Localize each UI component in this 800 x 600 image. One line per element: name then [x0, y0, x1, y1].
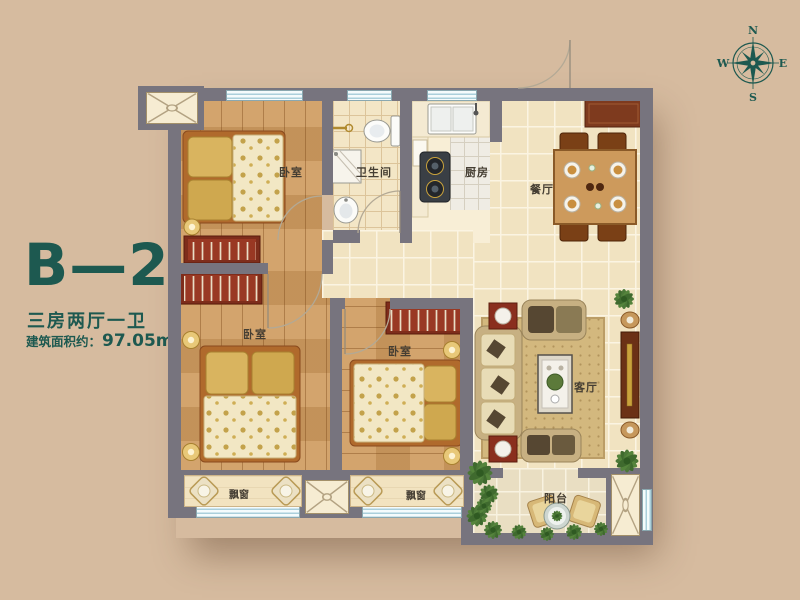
bedroom-mid-label: 卧室: [388, 343, 412, 359]
bedroom-top-label: 卧室: [279, 164, 303, 180]
room-labels: 卧室 卫生间 厨房 餐厅 卧室 卧室 客厅 阳台 飘窗 飘窗: [0, 0, 800, 600]
floorplan-scene: 卧室 卫生间 厨房 餐厅 卧室 卧室 客厅 阳台 飘窗 飘窗 B—2 三房两厅一…: [0, 0, 800, 600]
bedroom-left-label: 卧室: [243, 326, 267, 342]
living-label: 客厅: [574, 379, 598, 395]
compass-south-label: S: [749, 91, 757, 104]
kitchen-label: 厨房: [465, 164, 489, 180]
compass-north-label: N: [748, 24, 758, 37]
bathroom-label: 卫生间: [356, 164, 392, 180]
compass-icon: N S W E: [712, 20, 794, 106]
bay-window-mid-label: 飘窗: [406, 487, 426, 502]
compass-east-label: E: [779, 57, 787, 70]
bay-window-left-label: 飘窗: [229, 486, 249, 501]
compass-west-label: W: [716, 57, 730, 70]
balcony-label: 阳台: [544, 490, 568, 506]
dining-label: 餐厅: [530, 181, 554, 197]
